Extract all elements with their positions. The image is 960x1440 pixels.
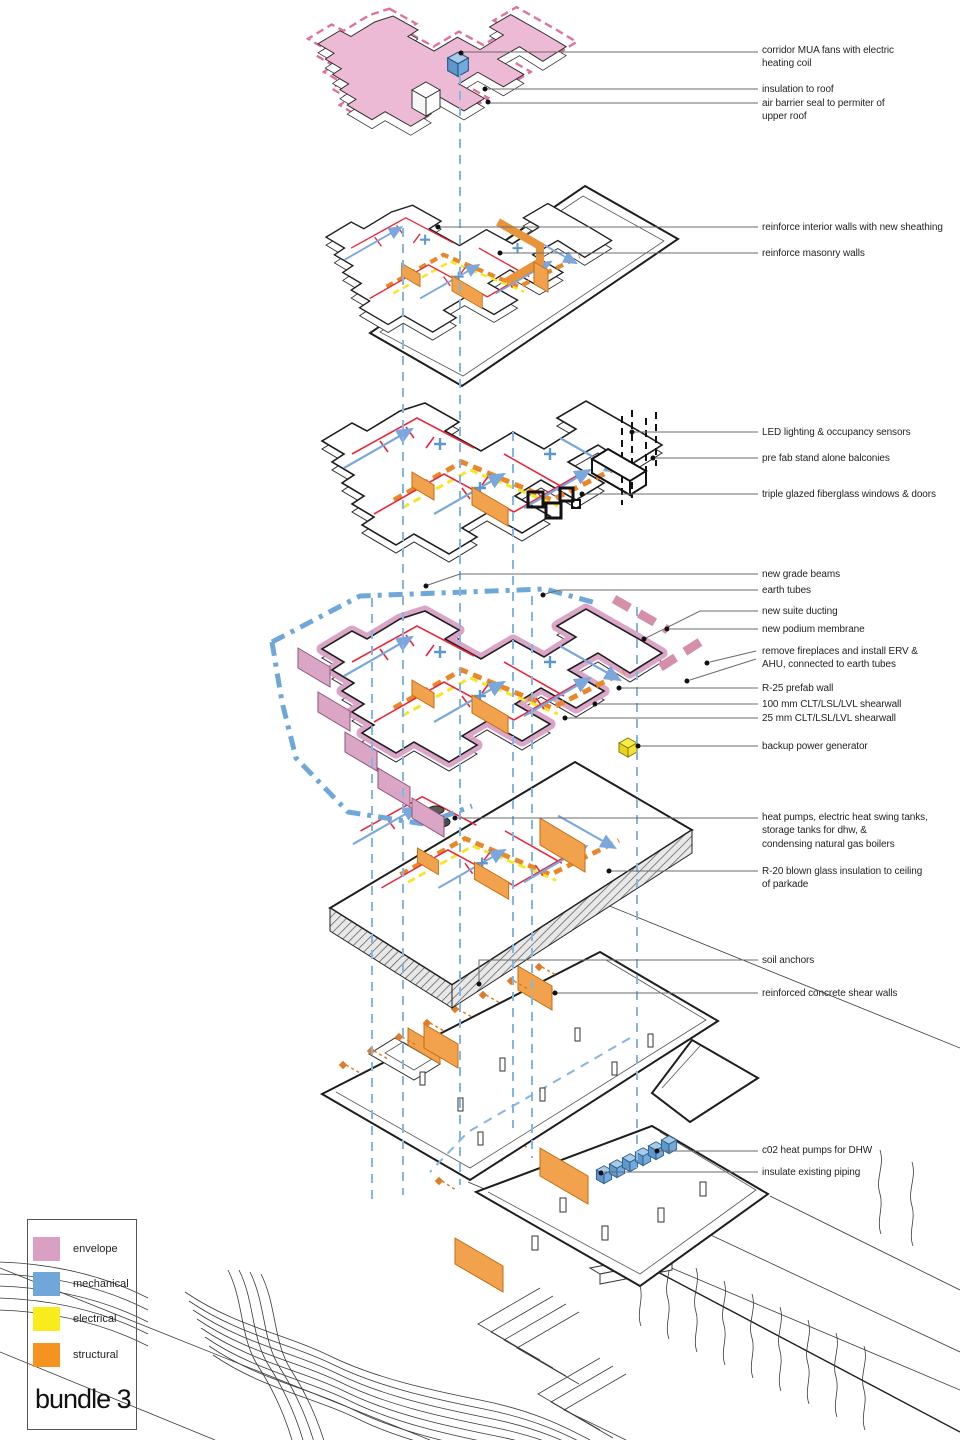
mua-fan-cube — [448, 52, 469, 76]
suite-level — [322, 401, 662, 562]
annotation-label: pre fab stand alone balconies — [762, 452, 957, 465]
annotation-label: 100 mm CLT/LSL/LVL shearwall — [762, 698, 957, 711]
annotation-label: c02 heat pumps for DHW — [762, 1144, 957, 1157]
exploded-axon-page: corridor MUA fans with electric heating … — [0, 0, 960, 1440]
rooftop-unit-cube — [412, 82, 440, 116]
annotation-label: R-20 blown glass insulation to ceiling o… — [762, 865, 957, 892]
annotation-label: new suite ducting — [762, 605, 957, 618]
envelope-swatch — [33, 1237, 60, 1261]
legend-item-envelope: envelope — [33, 1237, 118, 1261]
retaining-steps — [478, 1288, 626, 1440]
annotation-label: air barrier seal to permiter of upper ro… — [762, 97, 957, 124]
annotation-label: 25 mm CLT/LSL/LVL shearwall — [762, 712, 957, 725]
electrical-swatch — [33, 1307, 60, 1331]
annotation-label: earth tubes — [762, 584, 957, 597]
shear-wall — [455, 1238, 503, 1292]
annotation-label: reinforce masonry walls — [762, 247, 957, 260]
legend-label: electrical — [73, 1313, 116, 1325]
roof-level — [308, 7, 577, 135]
annotation-label: insulate existing piping — [762, 1166, 957, 1179]
legend-box: envelope mechanical electrical structura… — [27, 1219, 137, 1430]
annotation-label: triple glazed fiberglass windows & doors — [762, 488, 957, 501]
upper-floor-level — [326, 186, 678, 386]
annotation-label: new podium membrane — [762, 623, 957, 636]
legend-label: structural — [73, 1349, 118, 1361]
annotation-label: backup power generator — [762, 740, 957, 753]
backup-generator-cube — [619, 738, 637, 757]
structural-swatch — [33, 1343, 60, 1367]
annotation-label: LED lighting & occupancy sensors — [762, 426, 957, 439]
parkade-level — [322, 952, 758, 1180]
annotation-label: new grade beams — [762, 568, 957, 581]
legend-item-electrical: electrical — [33, 1307, 116, 1331]
legend-label: mechanical — [73, 1278, 129, 1290]
annotation-label: reinforced concrete shear walls — [762, 987, 957, 1000]
annotation-label: remove fireplaces and install ERV & AHU,… — [762, 645, 957, 672]
annotation-label: corridor MUA fans with electric heating … — [762, 44, 957, 71]
legend-item-structural: structural — [33, 1343, 118, 1367]
mechanical-swatch — [33, 1272, 60, 1296]
legend-item-mechanical: mechanical — [33, 1272, 129, 1296]
legend-title: bundle 3 — [35, 1384, 131, 1415]
annotation-label: heat pumps, electric heat swing tanks, s… — [762, 811, 957, 851]
annotation-label: R-25 prefab wall — [762, 682, 957, 695]
annotation-label: reinforce interior walls with new sheath… — [762, 221, 957, 234]
legend-label: envelope — [73, 1243, 118, 1255]
annotation-label: soil anchors — [762, 954, 957, 967]
annotation-label: insulation to roof — [762, 83, 957, 96]
